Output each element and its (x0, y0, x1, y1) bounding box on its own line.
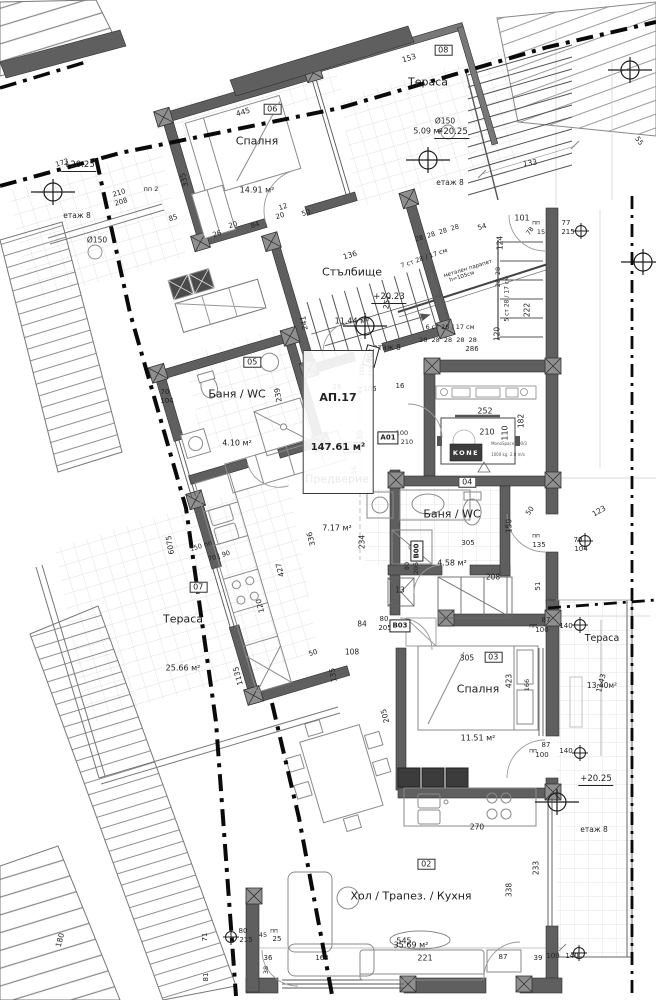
floorplan-drawing (0, 0, 656, 1000)
floorplan-page: 06 Спалня 14.91 м² 08 Тераса 5.09 м² Стъ… (0, 0, 656, 1000)
return-stairs (498, 240, 543, 340)
bedroom03-furniture (418, 646, 538, 730)
metal-railing (398, 264, 549, 317)
elevator (436, 386, 536, 472)
